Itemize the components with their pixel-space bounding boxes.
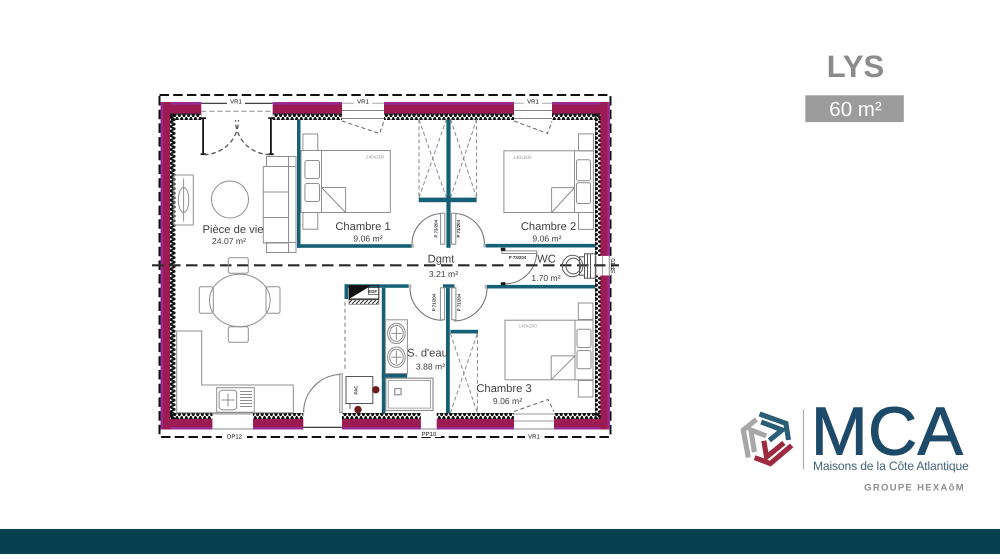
svg-text:1.70 m²: 1.70 m² <box>531 273 560 283</box>
svg-text:VR1: VR1 <box>230 99 242 106</box>
svg-text:Chambre 1: Chambre 1 <box>335 221 390 233</box>
svg-text:P 71/204: P 71/204 <box>457 293 462 311</box>
svg-text:24.07 m²: 24.07 m² <box>212 236 246 246</box>
svg-text:Maisons de la Côte Atlantique: Maisons de la Côte Atlantique <box>813 459 969 473</box>
svg-text:PAC: PAC <box>354 385 359 395</box>
svg-text:EDF: EDF <box>368 289 377 294</box>
svg-text:Chambre 3: Chambre 3 <box>476 383 531 395</box>
svg-text:P 73/204: P 73/204 <box>456 219 461 237</box>
svg-text:P 73/204: P 73/204 <box>433 219 438 237</box>
svg-text:140x200: 140x200 <box>518 324 537 330</box>
svg-text:VR1: VR1 <box>528 434 540 441</box>
svg-text:GROUPE HEXAôM: GROUPE HEXAôM <box>864 483 965 494</box>
svg-text:SP10: SP10 <box>610 258 617 273</box>
svg-text:S. d'eau: S. d'eau <box>407 348 448 360</box>
svg-text:140x200: 140x200 <box>513 155 532 161</box>
svg-text:VR1: VR1 <box>527 99 539 106</box>
svg-text:DP12: DP12 <box>227 434 243 441</box>
svg-text:3.21 m²: 3.21 m² <box>429 269 458 279</box>
svg-text:Chambre 2: Chambre 2 <box>521 221 576 233</box>
svg-text:140x200: 140x200 <box>366 155 385 161</box>
svg-text:Pièce de vie: Pièce de vie <box>203 224 264 236</box>
svg-text:PP10: PP10 <box>422 431 437 438</box>
svg-text:LYS: LYS <box>827 49 884 84</box>
svg-text:9.06 m²: 9.06 m² <box>532 234 561 244</box>
svg-text:Dgmt: Dgmt <box>428 254 456 266</box>
svg-text:3.88 m²: 3.88 m² <box>416 362 445 372</box>
svg-text:9.06 m²: 9.06 m² <box>493 396 522 406</box>
svg-text:P 71/204: P 71/204 <box>432 293 437 311</box>
svg-text:P 73/204: P 73/204 <box>509 255 527 260</box>
svg-text:9.06 m²: 9.06 m² <box>353 234 382 244</box>
svg-text:VR1: VR1 <box>357 99 369 106</box>
svg-text:60 m²: 60 m² <box>829 98 882 121</box>
svg-text:WC: WC <box>537 254 556 266</box>
